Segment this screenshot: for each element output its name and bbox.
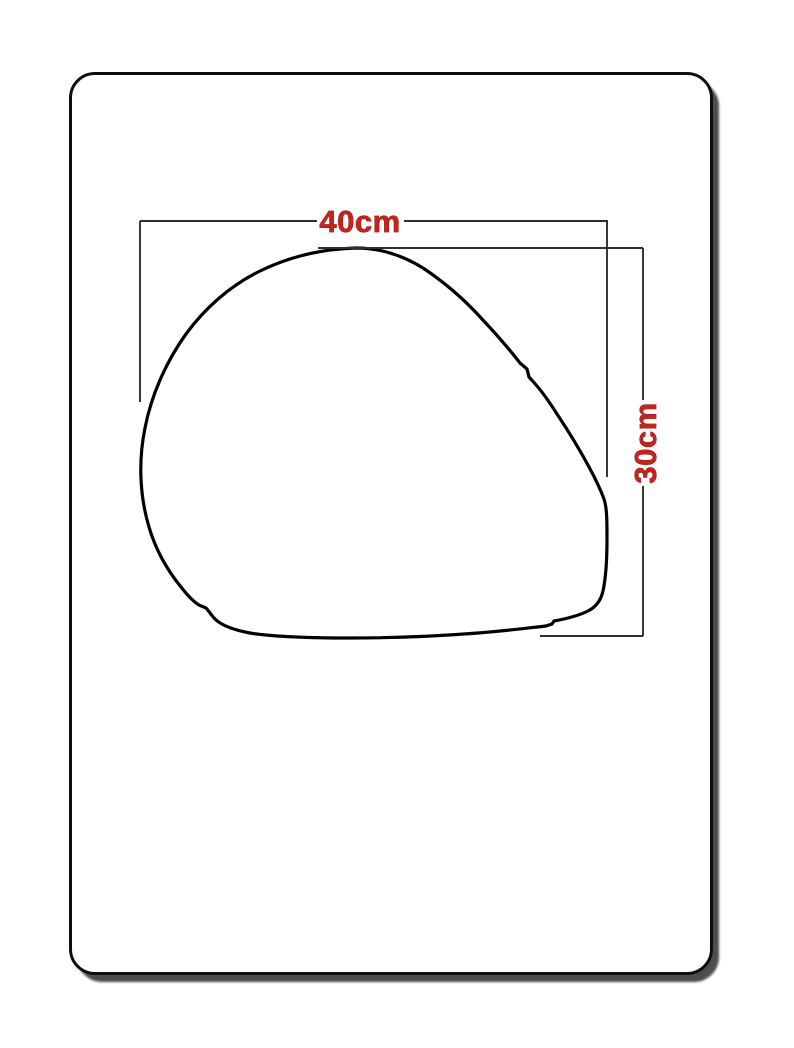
width-label: 40cm (319, 204, 400, 239)
height-label: 30cm (628, 402, 663, 483)
helmet-outline (141, 248, 607, 638)
dimension-diagram: 40cm 30cm (0, 0, 794, 1048)
dimension-diagram-page: 40cm 30cm (0, 0, 794, 1048)
